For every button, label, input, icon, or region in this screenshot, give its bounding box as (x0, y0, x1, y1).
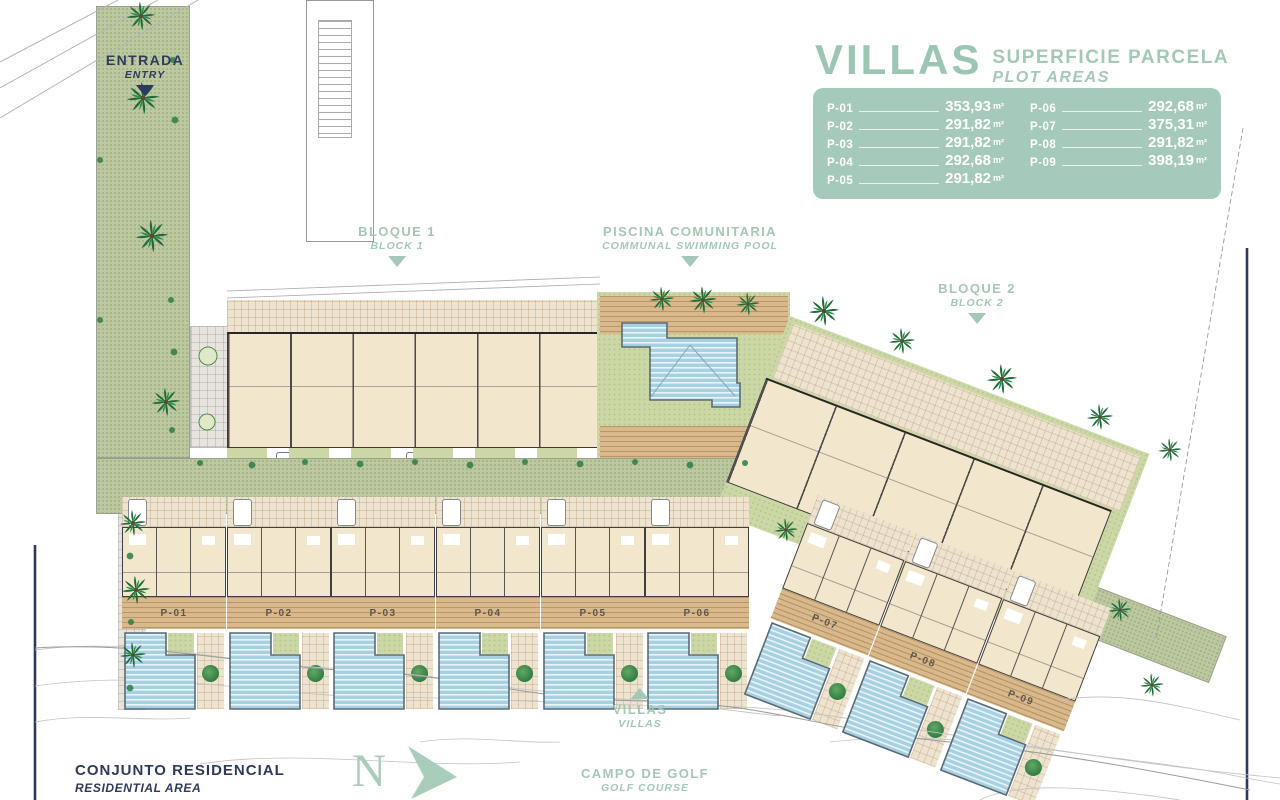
villa-p06: P-06 (645, 497, 749, 711)
villa-floorplan (645, 527, 749, 597)
plot-area-unit: m² (993, 137, 1004, 147)
plot-area-value: 353,93 (945, 98, 991, 115)
villa-deck: P-01 (122, 597, 226, 629)
north-arrow-icon (408, 746, 457, 799)
villa-driveway (227, 497, 331, 527)
plot-row: P-07375,31m² (1030, 118, 1207, 133)
villa-driveway (645, 497, 749, 527)
plot-area-unit: m² (1196, 155, 1207, 165)
communal-pool-arrow-icon (681, 256, 699, 267)
leader-line (859, 147, 939, 148)
villa-garden (691, 633, 717, 654)
residential-area-subtitle: RESIDENTIAL AREA (75, 781, 285, 795)
plot-id: P-06 (1030, 103, 1056, 115)
entrance-title: ENTRADA (106, 52, 184, 68)
parked-car (442, 499, 461, 526)
terrace-pavement (190, 326, 228, 448)
stairs (318, 20, 352, 138)
villas-subtitle: VILLAS (613, 718, 668, 730)
villa-garden (377, 633, 403, 654)
parked-car (651, 499, 670, 526)
plot-area-value: 291,82 (1148, 134, 1194, 151)
plot-id: P-09 (1030, 157, 1056, 169)
villa-floorplan (436, 527, 540, 597)
parked-car (337, 499, 356, 526)
parked-car (233, 499, 252, 526)
legend-subtitles: SUPERFICIE PARCELA PLOT AREAS (992, 47, 1229, 87)
plot-area-value: 291,82 (945, 134, 991, 151)
leader-line (859, 165, 939, 166)
villa-deck: P-02 (227, 597, 331, 629)
marker-golf-course: CAMPO DE GOLF GOLF COURSE (581, 766, 709, 794)
leader-line (859, 111, 939, 112)
villa-plot-label: P-04 (474, 608, 501, 619)
plot-area-unit: m² (1196, 137, 1207, 147)
marker-villas: VILLAS VILLAS (613, 688, 668, 730)
plot-id: P-02 (827, 121, 853, 133)
block2-arrow-icon (968, 313, 986, 324)
plot-area-value: 292,68 (945, 152, 991, 169)
villa-garden (482, 633, 508, 654)
villa-plot-label: P-07 (810, 612, 839, 632)
plot-id: P-07 (1030, 121, 1056, 133)
legend-subtitle-es: SUPERFICIE PARCELA (992, 47, 1229, 69)
block1-arrow-icon (388, 256, 406, 267)
villa-garden (587, 633, 613, 654)
villa-p03: P-03 (331, 497, 435, 711)
villa-plot-label: P-03 (369, 608, 396, 619)
marker-block2: BLOQUE 2 BLOCK 2 (938, 281, 1016, 324)
villa-driveway (331, 497, 435, 527)
plot-id: P-01 (827, 103, 853, 115)
plot-area-unit: m² (993, 173, 1004, 183)
site-plan-canvas: P-01 P-02 P-03 P-04 P-05 (0, 0, 1280, 800)
villa-deck: P-05 (541, 597, 645, 629)
plot-row: P-05291,82m² (827, 172, 1004, 187)
parked-car (547, 499, 566, 526)
plot-row: P-02291,82m² (827, 118, 1004, 133)
plot-row: P-06292,68m² (1030, 100, 1207, 115)
ramp-lines (227, 277, 600, 298)
block1-building (227, 332, 600, 448)
plot-row: P-03291,82m² (827, 136, 1004, 151)
tree-icon (202, 665, 219, 682)
plot-areas-column-right: P-06292,68m² P-07375,31m² P-08291,82m² P… (1030, 97, 1207, 190)
plot-area-unit: m² (1196, 101, 1207, 111)
tree-icon (621, 665, 638, 682)
plot-area-value: 291,82 (945, 116, 991, 133)
villa-floorplan (122, 527, 226, 597)
marker-block1: BLOQUE 1 BLOCK 1 (358, 224, 436, 267)
golf-subtitle: GOLF COURSE (581, 782, 709, 794)
villa-plot-label: P-02 (265, 608, 292, 619)
leader-line (1062, 129, 1142, 130)
villa-floorplan (331, 527, 435, 597)
villa-plot-label: P-06 (683, 608, 710, 619)
villa-p05: P-05 (541, 497, 645, 711)
villa-deck: P-06 (645, 597, 749, 629)
leader-line (1062, 111, 1142, 112)
villa-driveway (541, 497, 645, 527)
plot-areas-column-left: P-01353,93m² P-02291,82m² P-03291,82m² P… (827, 97, 1004, 190)
block2-subtitle: BLOCK 2 (938, 297, 1016, 309)
plot-area-value: 398,19 (1148, 152, 1194, 169)
legend-title: VILLAS (815, 42, 982, 78)
plot-area-unit: m² (993, 101, 1004, 111)
legend-header: VILLAS SUPERFICIE PARCELA PLOT AREAS (815, 42, 1229, 87)
plot-area-value: 375,31 (1148, 116, 1194, 133)
villa-plot-label: P-09 (1006, 688, 1035, 708)
villa-garden (903, 676, 935, 705)
tree-icon (411, 665, 428, 682)
plot-area-value: 291,82 (945, 170, 991, 187)
plot-row: P-09398,19m² (1030, 154, 1207, 169)
villa-p04: P-04 (436, 497, 540, 711)
villa-garden (805, 638, 837, 667)
plot-id: P-08 (1030, 139, 1056, 151)
block1-title: BLOQUE 1 (358, 224, 436, 239)
block1-subtitle: BLOCK 1 (358, 240, 436, 252)
villa-plot-label: P-05 (579, 608, 606, 619)
golf-title: CAMPO DE GOLF (581, 766, 709, 781)
communal-pool-title: PISCINA COMUNITARIA (602, 224, 778, 239)
block2-title: BLOQUE 2 (938, 281, 1016, 296)
leader-line (859, 129, 939, 130)
leader-line (1062, 147, 1142, 148)
villa-garden (168, 633, 194, 654)
villa-deck: P-03 (331, 597, 435, 629)
villa-deck: P-04 (436, 597, 540, 629)
communal-pool-subtitle: COMMUNAL SWIMMING POOL (602, 240, 778, 252)
villa-driveway (122, 497, 226, 527)
leader-line (859, 183, 939, 184)
plot-row: P-01353,93m² (827, 100, 1004, 115)
villa-floorplan (541, 527, 645, 597)
legend-subtitle-en: PLOT AREAS (992, 69, 1229, 87)
tree-icon (307, 665, 324, 682)
villa-plot-label: P-01 (160, 608, 187, 619)
block1-pavement (227, 300, 600, 334)
plot-area-value: 292,68 (1148, 98, 1194, 115)
plot-id: P-03 (827, 139, 853, 151)
villa-p01: P-01 (122, 497, 226, 711)
plot-row: P-08291,82m² (1030, 136, 1207, 151)
villa-garden (1001, 714, 1033, 743)
villa-garden (273, 633, 299, 654)
plot-areas-panel: P-01353,93m² P-02291,82m² P-03291,82m² P… (813, 88, 1221, 199)
villa-p02: P-02 (227, 497, 331, 711)
marker-communal-pool: PISCINA COMUNITARIA COMMUNAL SWIMMING PO… (602, 224, 778, 267)
north-letter: N (352, 744, 386, 798)
plot-area-unit: m² (993, 155, 1004, 165)
villa-floorplan (227, 527, 331, 597)
villas-arrow-icon (631, 688, 649, 699)
leader-line (1062, 165, 1142, 166)
marker-entrance: ENTRADA ENTRY (106, 52, 184, 96)
tree-icon (725, 665, 742, 682)
entrance-subtitle: ENTRY (106, 69, 184, 81)
plot-id: P-05 (827, 175, 853, 187)
villa-driveway (436, 497, 540, 527)
plot-id: P-04 (827, 157, 853, 169)
tree-icon (516, 665, 533, 682)
residential-area-title: CONJUNTO RESIDENCIAL (75, 762, 285, 779)
plot-row: P-04292,68m² (827, 154, 1004, 169)
marker-residential-area: CONJUNTO RESIDENCIAL RESIDENTIAL AREA (75, 762, 285, 795)
villa-plot-label: P-08 (908, 650, 937, 670)
plot-area-unit: m² (1196, 119, 1207, 129)
pool-deck-north (600, 296, 788, 334)
entrance-arrow-icon (136, 85, 154, 96)
villas-title: VILLAS (613, 702, 668, 717)
plot-area-unit: m² (993, 119, 1004, 129)
parked-car (128, 499, 147, 526)
